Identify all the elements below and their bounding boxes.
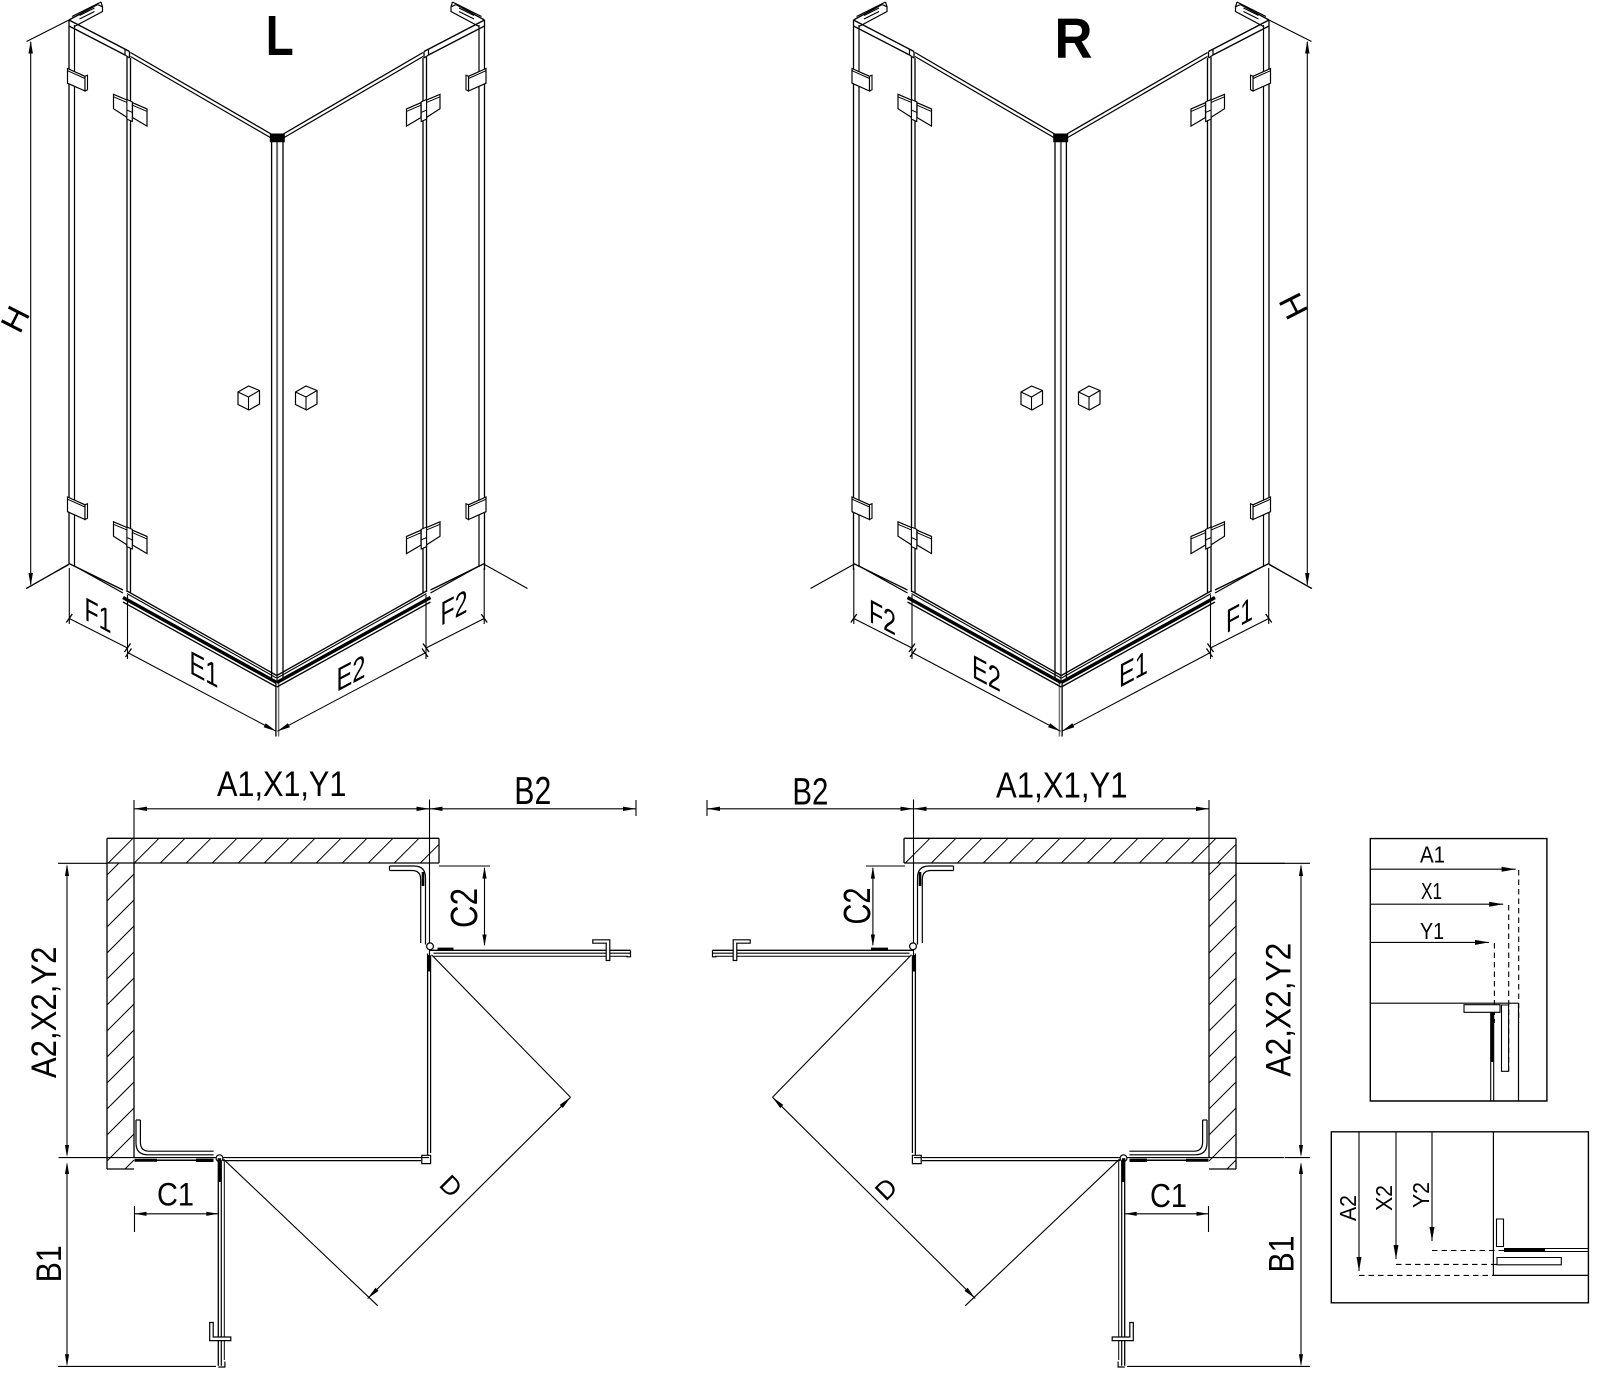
svg-text:X2: X2 bbox=[1371, 1185, 1397, 1211]
svg-text:A2,X2,Y2: A2,X2,Y2 bbox=[25, 947, 64, 1079]
svg-text:C1: C1 bbox=[157, 1177, 194, 1213]
svg-text:A1,X1,Y1: A1,X1,Y1 bbox=[217, 765, 346, 804]
svg-text:A2: A2 bbox=[1335, 1195, 1361, 1221]
svg-text:C1: C1 bbox=[1150, 1177, 1187, 1214]
svg-text:Y2: Y2 bbox=[1408, 1182, 1434, 1208]
svg-text:B2: B2 bbox=[792, 771, 828, 813]
svg-text:A2,X2,Y2: A2,X2,Y2 bbox=[1260, 943, 1299, 1077]
svg-text:R: R bbox=[1055, 7, 1093, 71]
svg-text:B1: B1 bbox=[30, 1245, 69, 1282]
svg-text:B1: B1 bbox=[1263, 1236, 1302, 1273]
svg-text:X1: X1 bbox=[1421, 878, 1442, 904]
svg-text:C2: C2 bbox=[837, 888, 879, 925]
svg-text:C2: C2 bbox=[444, 888, 486, 928]
svg-text:L: L bbox=[266, 4, 294, 68]
svg-text:A1: A1 bbox=[1420, 842, 1445, 868]
svg-text:A1,X1,Y1: A1,X1,Y1 bbox=[996, 765, 1128, 806]
svg-text:Y1: Y1 bbox=[1420, 918, 1444, 944]
svg-text:B2: B2 bbox=[514, 770, 551, 813]
